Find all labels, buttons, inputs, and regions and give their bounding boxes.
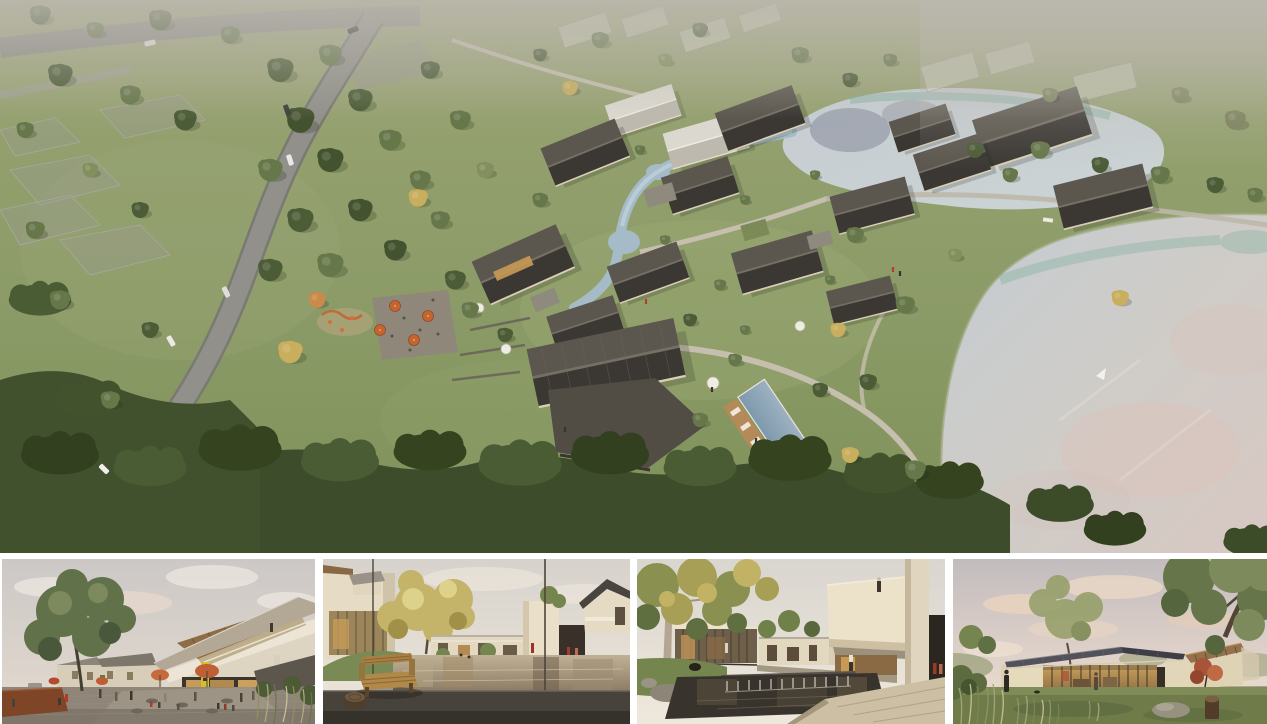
balcony-person bbox=[270, 623, 273, 632]
thumbnail-weir-courtyard bbox=[637, 559, 945, 724]
thumbnail-plaza-cafe bbox=[2, 559, 315, 724]
aerial-masterplan-render bbox=[0, 0, 1267, 553]
cantilever-volume bbox=[827, 577, 907, 675]
thumbnail-pond-bench bbox=[323, 559, 630, 724]
render-collage-board bbox=[0, 0, 1267, 724]
left-pavilion bbox=[673, 621, 759, 665]
lawn bbox=[953, 687, 1267, 724]
thumbnail-dusk-pavilion bbox=[953, 559, 1267, 724]
